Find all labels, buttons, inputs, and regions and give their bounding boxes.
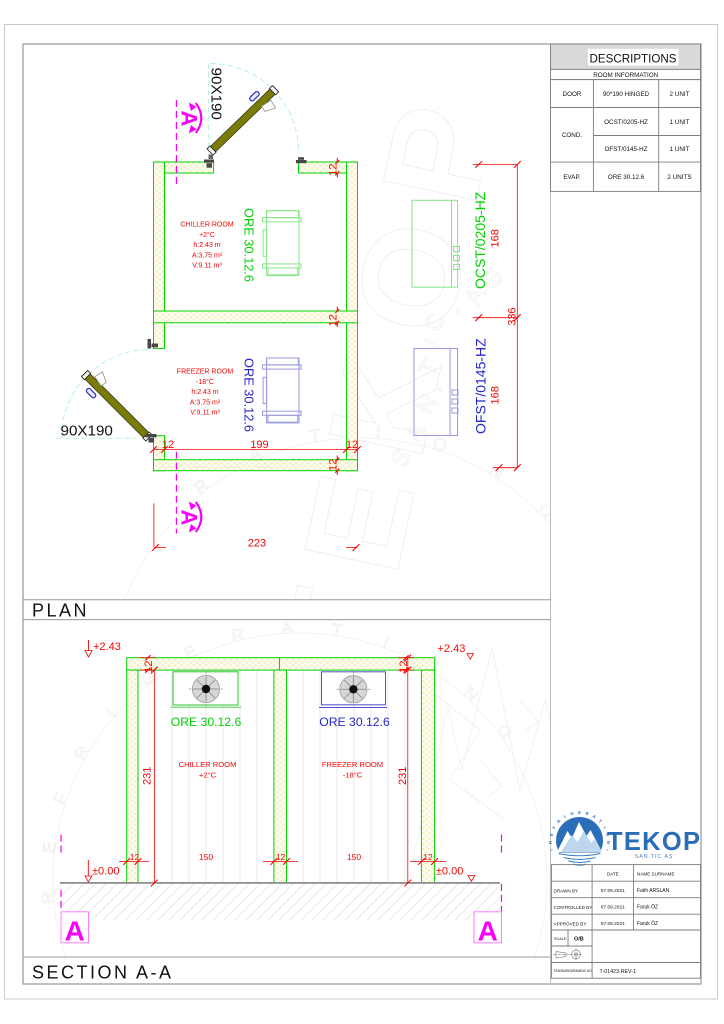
svg-text:R: R xyxy=(38,891,58,905)
svg-text:12: 12 xyxy=(162,439,174,451)
svg-text:A: A xyxy=(177,510,202,526)
svg-text:12: 12 xyxy=(328,164,340,176)
svg-text:FREEZER ROOM: FREEZER ROOM xyxy=(177,369,234,376)
svg-text:199: 199 xyxy=(250,439,268,451)
svg-text:+2.43: +2.43 xyxy=(438,643,466,655)
svg-text:TEKOP: TEKOP xyxy=(607,828,700,856)
svg-text:V:9.11 m³: V:9.11 m³ xyxy=(192,263,222,270)
svg-text:APPROVED BY: APPROVED BY xyxy=(554,922,587,927)
svg-text:1 UNIT: 1 UNIT xyxy=(670,119,690,126)
svg-text:T-01423-REV-1: T-01423-REV-1 xyxy=(600,969,637,975)
svg-text:CHILLER ROOM: CHILLER ROOM xyxy=(179,760,237,769)
svg-text:ORE 30.12.6: ORE 30.12.6 xyxy=(319,715,390,729)
svg-text:12: 12 xyxy=(346,439,358,451)
svg-text:Faruk ÖZ: Faruk ÖZ xyxy=(637,903,658,910)
svg-text:12: 12 xyxy=(143,661,155,673)
svg-text:ORE 30.12.6: ORE 30.12.6 xyxy=(242,208,257,282)
svg-text:CHILLER ROOM: CHILLER ROOM xyxy=(180,222,233,229)
svg-text:ORE 30.12.6: ORE 30.12.6 xyxy=(171,715,242,729)
svg-text:NAME SURNAME: NAME SURNAME xyxy=(637,871,675,876)
svg-text:231: 231 xyxy=(397,767,409,785)
svg-text:12: 12 xyxy=(130,852,140,862)
svg-text:h:2.43 m: h:2.43 m xyxy=(191,389,218,396)
svg-text:2 UNIT: 2 UNIT xyxy=(670,91,690,98)
svg-text:+2.43: +2.43 xyxy=(93,641,121,653)
svg-text:168: 168 xyxy=(489,229,501,247)
svg-text:+2°C: +2°C xyxy=(199,770,217,779)
svg-text:ORE 30.12.6: ORE 30.12.6 xyxy=(242,358,257,432)
svg-text:07.09.2021: 07.09.2021 xyxy=(601,921,625,927)
svg-text:PLAN: PLAN xyxy=(32,601,89,621)
svg-text:A: A xyxy=(65,916,85,947)
svg-text:ORE 30.12.6: ORE 30.12.6 xyxy=(608,174,645,181)
svg-text:07.09.2021: 07.09.2021 xyxy=(601,888,625,894)
svg-text:A: A xyxy=(478,916,498,947)
svg-text:±0.00: ±0.00 xyxy=(436,866,463,878)
svg-text:R: R xyxy=(548,841,553,844)
svg-text:E: E xyxy=(578,810,581,815)
svg-text:150: 150 xyxy=(347,852,361,862)
svg-text:ROOM INFORMATION: ROOM INFORMATION xyxy=(593,72,658,79)
svg-text:OCST/0205-HZ: OCST/0205-HZ xyxy=(604,119,648,126)
svg-text:OFST/0145-HZ: OFST/0145-HZ xyxy=(604,146,647,153)
svg-text:12: 12 xyxy=(423,852,433,862)
svg-text:A: A xyxy=(281,618,294,638)
svg-text:h:2.43 m: h:2.43 m xyxy=(193,242,220,249)
svg-text:CONTROLLED BY: CONTROLLED BY xyxy=(554,905,593,910)
svg-text:12: 12 xyxy=(276,852,286,862)
svg-text:FREEZER ROOM: FREEZER ROOM xyxy=(322,760,383,769)
svg-text:1 UNIT: 1 UNIT xyxy=(670,146,690,153)
svg-text:-18°C: -18°C xyxy=(343,770,363,779)
svg-text:DOOR: DOOR xyxy=(563,91,582,98)
svg-text:SCALE: SCALE xyxy=(554,937,567,941)
svg-text:OFST/0145-HZ: OFST/0145-HZ xyxy=(473,338,489,434)
svg-text:2 UNITS: 2 UNITS xyxy=(667,174,691,181)
svg-text:223: 223 xyxy=(248,538,266,550)
svg-text:DESCRIPTIONS: DESCRIPTIONS xyxy=(590,52,677,65)
svg-text:V:9.11 m³: V:9.11 m³ xyxy=(190,410,220,417)
svg-text:DRAWN BY: DRAWN BY xyxy=(554,889,579,894)
svg-text:O/B: O/B xyxy=(574,937,584,943)
svg-text:A: A xyxy=(177,111,202,127)
svg-text:SECTION A-A: SECTION A-A xyxy=(32,963,174,983)
svg-text:336: 336 xyxy=(506,307,518,325)
svg-text:±0.00: ±0.00 xyxy=(92,866,119,878)
svg-text:168: 168 xyxy=(489,386,501,404)
svg-text:Fatih ARSLAN: Fatih ARSLAN xyxy=(637,888,670,894)
svg-text:A:3.75 m²: A:3.75 m² xyxy=(190,399,221,406)
svg-text:90X190: 90X190 xyxy=(208,68,225,120)
svg-text:E: E xyxy=(39,841,59,855)
svg-text:COND.: COND. xyxy=(562,132,583,139)
svg-text:90X190: 90X190 xyxy=(61,423,113,440)
svg-text:EVAP.: EVAP. xyxy=(563,174,581,181)
svg-text:-18°C: -18°C xyxy=(196,378,214,386)
svg-text:90*190 HINGED: 90*190 HINGED xyxy=(603,91,650,98)
svg-text:150: 150 xyxy=(199,852,213,862)
svg-text:OCST/0205-HZ: OCST/0205-HZ xyxy=(472,191,488,289)
svg-text:STANDARDDRAWING NO: STANDARDDRAWING NO xyxy=(554,969,593,973)
svg-text:A:3.75 m²: A:3.75 m² xyxy=(192,252,223,259)
svg-text:12: 12 xyxy=(328,314,340,326)
svg-text:12: 12 xyxy=(328,459,340,471)
svg-text:DATE: DATE xyxy=(607,871,619,876)
svg-text:+2°C: +2°C xyxy=(199,231,215,239)
svg-text:231: 231 xyxy=(142,767,154,785)
svg-text:Faruk ÖZ: Faruk ÖZ xyxy=(637,920,658,927)
svg-text:SAN.TIC.AŞ: SAN.TIC.AŞ xyxy=(635,854,674,860)
svg-text:12: 12 xyxy=(398,661,410,673)
svg-text:07.09.2021: 07.09.2021 xyxy=(601,904,625,910)
